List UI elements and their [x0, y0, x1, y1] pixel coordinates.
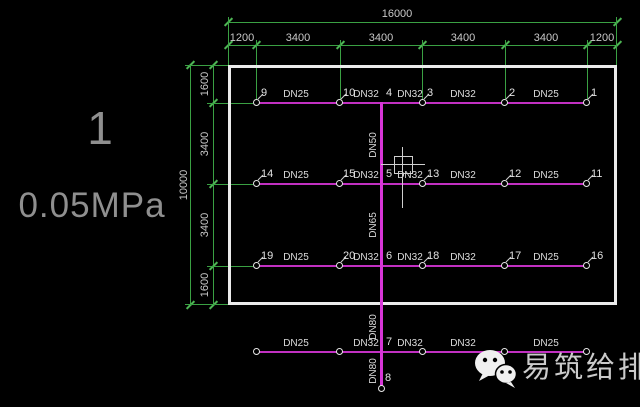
dim-label: 3400	[359, 32, 403, 44]
cad-drawing-canvas[interactable]: 16000 1200 3400 3400 3400 3400 1200 1000…	[0, 0, 640, 407]
pipe-size-label: DN32	[346, 338, 386, 349]
dim-label: 1600	[199, 62, 211, 106]
node-label: 9	[261, 88, 267, 99]
pipe-size-label: DN32	[443, 170, 483, 181]
node-label: 2	[509, 88, 515, 99]
pickbox	[394, 156, 413, 174]
riser-number: 1	[60, 103, 140, 153]
pipe-size-label: DN25	[526, 252, 566, 263]
node-label: 11	[591, 169, 602, 180]
pipe-node	[583, 99, 590, 106]
pipe-size-label: DN25	[276, 338, 316, 349]
pipe-size-label: DN25	[526, 338, 566, 349]
pipe-size-label: DN32	[390, 89, 430, 100]
pipe-node	[336, 99, 343, 106]
node-label: 17	[509, 251, 521, 262]
node-label: 14	[261, 169, 273, 180]
dim-label: 10000	[178, 157, 190, 213]
pressure-label: 0.05MPa	[8, 186, 176, 226]
node-label: 1	[591, 88, 597, 99]
pipe-node	[501, 180, 508, 187]
dim-label: 3400	[524, 32, 568, 44]
pipe-node	[253, 99, 260, 106]
pipe-node	[336, 262, 343, 269]
pipe-node	[501, 262, 508, 269]
pipe-size-label: DN32	[390, 338, 430, 349]
pipe-node	[253, 180, 260, 187]
pipe-node	[378, 385, 385, 392]
pipe-size-label: DN25	[276, 170, 316, 181]
pipe-node	[419, 262, 426, 269]
node-label: 8	[385, 373, 391, 384]
dim-label: 3400	[199, 203, 211, 247]
dim-label: 16000	[369, 8, 425, 20]
node-label: 12	[509, 169, 521, 180]
dim-label: 1200	[220, 32, 264, 44]
watermark-text: 易筑给排水	[522, 352, 640, 384]
pipe-node	[253, 262, 260, 269]
riser-segment-label: DN65	[368, 205, 380, 245]
pipe-size-label: DN32	[346, 170, 386, 181]
pipe-size-label: DN32	[346, 89, 386, 100]
dim-label: 3400	[199, 122, 211, 166]
node-label: 19	[261, 251, 273, 262]
pipe-node	[419, 99, 426, 106]
pipe-node	[419, 180, 426, 187]
pipe-size-label: DN25	[276, 89, 316, 100]
pipe-size-label: DN32	[346, 252, 386, 263]
pipe-size-label: DN32	[443, 252, 483, 263]
pipe-size-label: DN32	[390, 252, 430, 263]
pipe-node	[336, 180, 343, 187]
pipe-node	[501, 99, 508, 106]
pipe-node	[583, 262, 590, 269]
wechat-icon	[474, 348, 518, 390]
pipe-size-label: DN25	[276, 252, 316, 263]
pipe-node	[419, 348, 426, 355]
dim-label: 3400	[441, 32, 485, 44]
dim-label: 1600	[199, 263, 211, 307]
dim-label: 3400	[276, 32, 320, 44]
pipe-node	[583, 180, 590, 187]
riser-segment-label: DN50	[368, 125, 380, 165]
pipe-node	[336, 348, 343, 355]
node-label: 16	[591, 251, 603, 262]
pipe-size-label: DN32	[443, 89, 483, 100]
pipe-size-label: DN25	[526, 89, 566, 100]
pipe-size-label: DN25	[526, 170, 566, 181]
pipe-node	[253, 348, 260, 355]
